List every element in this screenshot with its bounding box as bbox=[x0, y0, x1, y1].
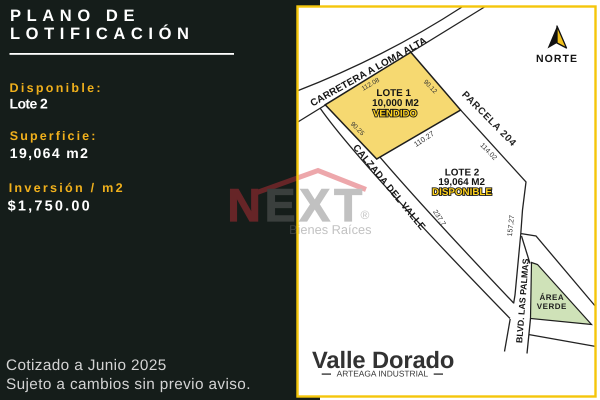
svg-text:ARTEAGA INDUSTRIAL: ARTEAGA INDUSTRIAL bbox=[337, 369, 429, 379]
svg-text:®: ® bbox=[361, 208, 370, 222]
svg-text:Inversión / m2: Inversión / m2 bbox=[9, 181, 125, 195]
svg-text:LOTIFICACIÓN: LOTIFICACIÓN bbox=[10, 24, 195, 43]
svg-text:NORTE: NORTE bbox=[536, 53, 578, 65]
svg-text:VENDIDO: VENDIDO bbox=[373, 109, 418, 120]
svg-text:$1,750.00: $1,750.00 bbox=[8, 199, 92, 215]
svg-text:DISPONIBLE: DISPONIBLE bbox=[432, 187, 492, 198]
svg-text:Bienes Raíces: Bienes Raíces bbox=[289, 222, 372, 237]
svg-text:19,064 m2: 19,064 m2 bbox=[10, 145, 90, 161]
svg-text:Sujeto a cambios sin previo av: Sujeto a cambios sin previo aviso. bbox=[6, 376, 251, 393]
svg-text:10,000 M2: 10,000 M2 bbox=[372, 98, 419, 109]
svg-text:Disponible:: Disponible: bbox=[10, 81, 103, 95]
svg-text:Superficie:: Superficie: bbox=[10, 129, 98, 143]
svg-text:Cotizado a Junio 2025: Cotizado a Junio 2025 bbox=[6, 357, 167, 374]
svg-text:PLANO DE: PLANO DE bbox=[10, 7, 140, 25]
svg-text:VERDE: VERDE bbox=[537, 302, 567, 311]
svg-text:ÁREA: ÁREA bbox=[539, 292, 564, 302]
svg-text:Lote 2: Lote 2 bbox=[10, 96, 48, 112]
